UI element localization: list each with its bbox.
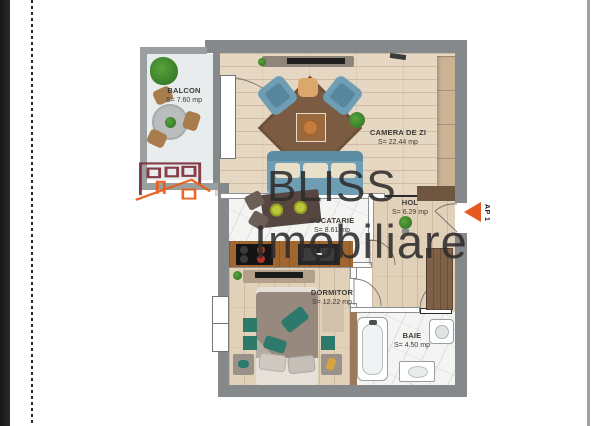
burner-red xyxy=(257,255,265,263)
tv xyxy=(287,58,345,64)
hallway-plant-icon xyxy=(399,216,412,229)
room-area: S= 6.29 mp xyxy=(392,208,428,217)
room-name: BALCON xyxy=(166,86,202,96)
nightstand-lamp-icon xyxy=(325,357,337,371)
stove-cooktop xyxy=(236,244,273,265)
sofa-cushion xyxy=(303,163,328,178)
hallway-wardrobe xyxy=(426,248,453,310)
room-name: BAIE xyxy=(394,331,430,341)
room-area: S= 12.22 mp xyxy=(311,298,353,307)
bathtub-faucet-icon xyxy=(369,320,377,325)
nightstand xyxy=(321,354,342,375)
room-name: CAMERA DE ZI xyxy=(370,128,426,138)
room-name: HOL xyxy=(392,198,428,208)
floorplan-page: BALCON S= 7.60 mp CAMERA DE ZI S= 22.44 … xyxy=(0,0,607,426)
bathroom-sink xyxy=(399,361,435,382)
console-plant-icon xyxy=(258,58,266,66)
burner-red xyxy=(257,246,265,254)
sofa-cushion xyxy=(275,163,300,178)
room-area: S= 22.44 mp xyxy=(370,138,426,147)
bathtub-inner xyxy=(362,324,383,375)
kitchen-door-arc xyxy=(370,240,395,265)
sink-basin xyxy=(302,248,316,261)
entrance-door-leaf-line xyxy=(435,211,457,232)
sink-bowl xyxy=(408,366,428,378)
room-label-bucatarie: BUCATARIE S= 8.61 mp xyxy=(310,216,355,236)
entrance-arrow-icon xyxy=(464,202,481,222)
room-label-baie: BAIE S= 4.50 mp xyxy=(394,331,430,351)
bedside-mat xyxy=(243,336,257,350)
room-label-camera-de-zi: CAMERA DE ZI S= 22.44 mp xyxy=(370,128,426,148)
room-name: DORMITOR xyxy=(311,288,353,298)
sofa-back xyxy=(267,151,363,161)
hallway-plant-pot xyxy=(402,229,409,234)
bathtub xyxy=(357,317,388,381)
bedside-mat xyxy=(321,336,335,350)
entrance-apartment-label: AP 1 xyxy=(483,204,490,221)
armchair-seat xyxy=(329,82,356,109)
room-area: S= 4.50 mp xyxy=(394,341,430,350)
bed-pillow xyxy=(258,352,287,372)
living-plant-icon xyxy=(349,112,365,128)
kitchen-sink xyxy=(298,244,340,265)
living-wardrobe xyxy=(437,56,455,194)
bedroom-tv xyxy=(255,272,303,278)
plate xyxy=(269,203,283,217)
entrance-door-arc xyxy=(435,204,457,211)
coffee-table-plate xyxy=(302,119,319,136)
burner xyxy=(240,246,248,254)
bed-pillow xyxy=(287,355,316,375)
room-name: BUCATARIE xyxy=(310,216,355,226)
faucet-icon xyxy=(316,253,322,255)
balcony-table-plant-icon xyxy=(165,117,176,128)
plate xyxy=(293,200,307,214)
lamp-side-table xyxy=(298,78,318,97)
room-area: S= 8.61 mp xyxy=(310,226,355,235)
balcony-plant-icon xyxy=(150,57,178,85)
burner xyxy=(240,255,248,263)
room-label-balcon: BALCON S= 7.60 mp xyxy=(166,86,202,106)
room-label-hol: HOL S= 6.29 mp xyxy=(392,198,428,218)
toilet-bowl xyxy=(435,325,449,339)
bedside-mat xyxy=(243,318,257,332)
bedroom-door-arc xyxy=(354,279,381,306)
nightstand xyxy=(233,354,254,375)
room-label-dormitor: DORMITOR S= 12.22 mp xyxy=(311,288,353,308)
bedroom-plant-icon xyxy=(233,271,242,280)
toilet xyxy=(429,319,454,344)
room-area: S= 7.60 mp xyxy=(166,96,202,105)
sink-basin xyxy=(320,248,334,261)
nightstand-item xyxy=(238,360,249,368)
sofa-cushion xyxy=(331,163,356,178)
armchair-seat xyxy=(264,82,291,109)
